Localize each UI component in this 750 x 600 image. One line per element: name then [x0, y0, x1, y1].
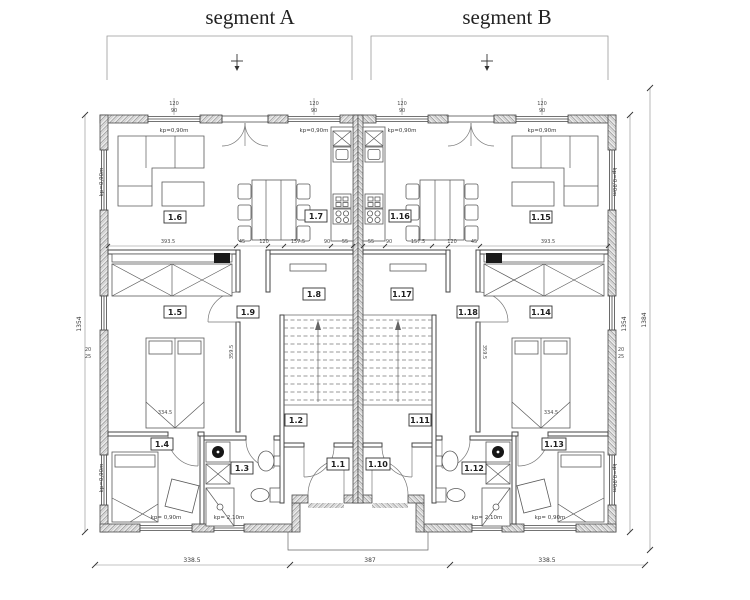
room-label-1-18: 1.18	[457, 306, 479, 318]
kp-label: kp=0,90m	[611, 464, 617, 493]
dim-row: 393.5	[161, 239, 175, 245]
dim-right-inner: 1354	[621, 316, 628, 331]
room-label-1-10: 1.10	[366, 458, 390, 470]
dim-window: 120	[537, 101, 547, 107]
washbasin	[258, 451, 274, 471]
room-label-1-15: 1.15	[530, 211, 552, 223]
floorplan-drawing: segment A segment B 1.6 1.7 1.5 1.9 1.8 …	[0, 0, 750, 600]
double-bed	[146, 338, 204, 428]
svg-text:1.4: 1.4	[155, 440, 170, 449]
dim-row: 120	[447, 239, 457, 245]
dim-note: 25	[618, 354, 624, 360]
svg-text:1.8: 1.8	[307, 290, 322, 299]
svg-text:1.9: 1.9	[241, 308, 256, 317]
svg-text:1.10: 1.10	[368, 460, 388, 469]
dim-window: 120	[309, 101, 319, 107]
entrance-threshold	[308, 503, 344, 508]
svg-text:1.11: 1.11	[410, 416, 430, 425]
room-label-1-16: 1.16	[389, 210, 411, 222]
kp-label: kp=0,90m	[300, 128, 329, 134]
dim-note: 20	[85, 347, 91, 353]
room-label-1-1: 1.1	[327, 458, 349, 470]
dim-row: 157.5	[411, 239, 425, 245]
dim-window: 120	[169, 101, 179, 107]
room-label-1-11: 1.11	[409, 414, 431, 426]
dim-row: 45	[471, 239, 477, 245]
room-label-1-12: 1.12	[462, 462, 486, 474]
wardrobe	[112, 253, 232, 296]
dim-row: 55	[368, 239, 374, 245]
room-label-1-7: 1.7	[305, 210, 327, 222]
dim-row: 157.5	[291, 239, 305, 245]
dim-row: 120	[259, 239, 269, 245]
kp-label: kp=0,90m	[99, 464, 105, 493]
room-label-1-3: 1.3	[231, 462, 253, 474]
room-label-1-2: 1.2	[285, 414, 307, 426]
dim-note: 25	[85, 354, 91, 360]
dim-row: 55	[342, 239, 348, 245]
svg-text:1.3: 1.3	[235, 464, 249, 473]
dim-row: 393.5	[541, 239, 555, 245]
kp-label: kp= 2,10m	[472, 515, 503, 521]
axis-marker-a	[231, 54, 243, 71]
svg-text:1.15: 1.15	[531, 213, 551, 222]
kitchen-counter	[331, 127, 353, 241]
svg-text:1.5: 1.5	[168, 308, 183, 317]
coffee-table	[162, 182, 204, 206]
dim-left-total: 1354	[76, 316, 83, 331]
bathroom-fixtures	[206, 442, 280, 526]
room-label-1-14: 1.14	[530, 306, 552, 318]
dim-bed: 334.5	[544, 410, 558, 416]
svg-text:1.6: 1.6	[168, 213, 183, 222]
dim-stair: 359.5	[481, 345, 487, 359]
room-label-1-17: 1.17	[391, 288, 413, 300]
kp-label: kp=0,90m	[611, 168, 617, 197]
toilet-bowl	[251, 489, 269, 502]
kp-label: kp=0,90m	[99, 168, 105, 197]
unit-geometry-mirrored	[358, 115, 616, 532]
svg-text:1.2: 1.2	[289, 416, 303, 425]
landing-shelf	[290, 264, 326, 271]
kp-label: kp=0,90m	[528, 128, 557, 134]
dim-bottom-right: 338.5	[538, 557, 555, 564]
segment-b-title: segment B	[462, 5, 551, 29]
dim-bottom-left: 338.5	[183, 557, 200, 564]
unit-geometry	[100, 115, 358, 532]
stair-direction-arrow	[315, 320, 321, 330]
kp-label: kp=0,90m	[388, 128, 417, 134]
dim-window: 90	[539, 108, 545, 114]
dim-window: 90	[171, 108, 177, 114]
svg-text:1.1: 1.1	[331, 460, 346, 469]
single-bed	[112, 452, 158, 522]
dim-window: 90	[311, 108, 317, 114]
svg-text:1.17: 1.17	[392, 290, 412, 299]
dining-table	[238, 180, 310, 241]
segment-a-title: segment A	[205, 5, 295, 29]
toilet-tank	[270, 488, 280, 502]
dim-row: 90	[324, 239, 330, 245]
bedside-table	[165, 479, 199, 513]
svg-text:1.18: 1.18	[458, 308, 478, 317]
dim-stair: 359.5	[229, 345, 235, 359]
porch-outline	[288, 532, 428, 550]
dim-row: 45	[239, 239, 245, 245]
kp-label: kp=0,90m	[160, 128, 189, 134]
axis-marker-b	[481, 54, 493, 71]
room-label-1-13: 1.13	[542, 438, 566, 450]
kp-label: kp= 0,90m	[151, 515, 182, 521]
room-label-1-9: 1.9	[237, 306, 259, 318]
room-label-1-6: 1.6	[164, 211, 186, 223]
staircase	[284, 315, 353, 405]
room-label-1-8: 1.8	[303, 288, 325, 300]
floorplan-page: segment A segment B 1.6 1.7 1.5 1.9 1.8 …	[0, 0, 750, 600]
kp-label: kp= 2,10m	[214, 515, 245, 521]
kp-label: kp= 0,90m	[535, 515, 566, 521]
svg-text:1.14: 1.14	[531, 308, 551, 317]
dim-bottom-center: 387	[364, 557, 376, 564]
dim-window: 90	[399, 108, 405, 114]
dim-window: 120	[397, 101, 407, 107]
dim-bed: 334.5	[158, 410, 172, 416]
svg-text:1.7: 1.7	[309, 212, 323, 221]
room-label-1-4: 1.4	[151, 438, 173, 450]
svg-text:1.12: 1.12	[464, 464, 484, 473]
dim-row: 90	[386, 239, 392, 245]
segment-brackets	[107, 36, 608, 80]
svg-text:1.16: 1.16	[390, 212, 410, 221]
dim-right-outer: 1384	[641, 312, 648, 327]
dim-note: 20	[618, 347, 624, 353]
svg-text:1.13: 1.13	[544, 440, 564, 449]
room-label-1-5: 1.5	[164, 306, 186, 318]
